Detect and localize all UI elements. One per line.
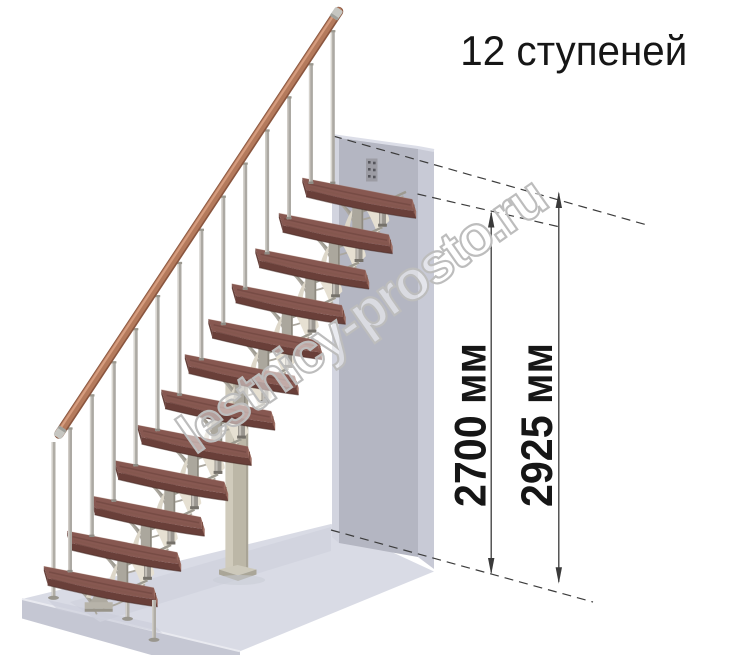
svg-text:2700 мм: 2700 мм — [447, 343, 496, 507]
svg-text:12 ступеней: 12 ступеней — [460, 27, 687, 74]
svg-text:2925 мм: 2925 мм — [513, 343, 562, 507]
